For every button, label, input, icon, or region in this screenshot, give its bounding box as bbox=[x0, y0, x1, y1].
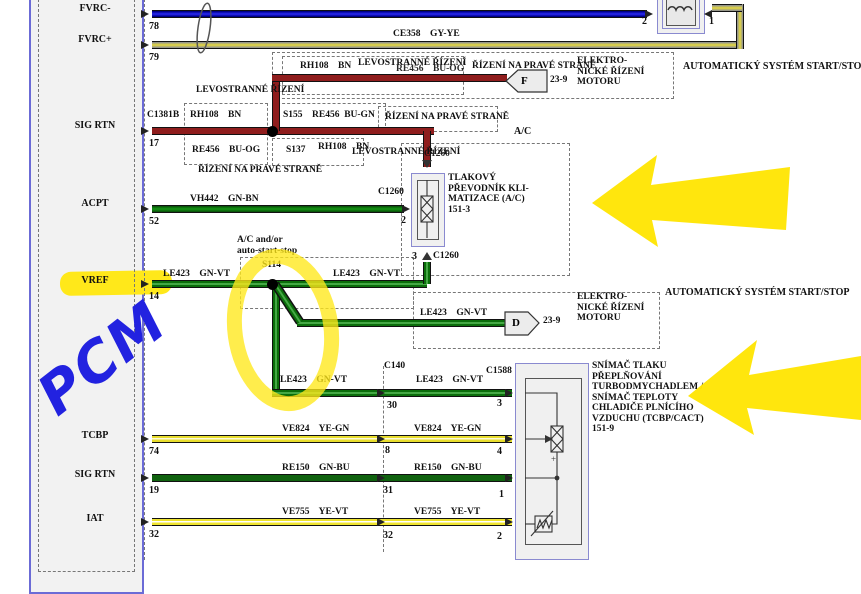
pcm-pin-label: TCBP bbox=[55, 431, 135, 442]
pcm-pin-number: 74 bbox=[149, 446, 159, 457]
c140-pin-31: 31 bbox=[383, 485, 393, 496]
tcbp-sensor-inner bbox=[525, 378, 582, 545]
c140-pin-32: 32 bbox=[383, 530, 393, 541]
label-splice-s155: S155 bbox=[283, 110, 303, 121]
wire-rh108-branch-to-f bbox=[272, 74, 507, 82]
wire-le423-vref-main bbox=[152, 280, 427, 288]
wire-ve755-ye-vt bbox=[152, 518, 512, 526]
pcm-pin-label: IAT bbox=[55, 514, 135, 525]
splice-s155-s137-dot bbox=[267, 126, 278, 137]
wire-le423-riser-c1260 bbox=[423, 262, 431, 284]
label-c1260-top: C1260 bbox=[424, 149, 450, 160]
label-ac-transducer: TLAKOVÝ PŘEVODNÍK KLI- MATIZACE (A/C) 15… bbox=[448, 173, 529, 215]
c1588-pin-4: 4 bbox=[497, 446, 502, 457]
pcm-connector-face-line bbox=[144, 0, 145, 560]
label-wire-rh108-top: RH108 BN bbox=[300, 61, 351, 72]
wire-ce358-gy-ye bbox=[152, 41, 744, 49]
pcm-pin-label: FVRC- bbox=[55, 4, 135, 15]
wiring-diagram-canvas: FVRC- FVRC+ SIG RTN ACPT VREF TCBP SIG R… bbox=[0, 0, 861, 594]
c1260-pin-2: 2 bbox=[401, 215, 406, 226]
c140-pin-8: 8 bbox=[385, 445, 390, 456]
pcm-pin-number: 78 bbox=[149, 21, 159, 32]
label-auto-start-stop-d: AUTOMATICKÝ SYSTÉM START/STOP bbox=[665, 288, 850, 299]
pcm-pin-number: 79 bbox=[149, 52, 159, 63]
label-wire-le423-c: LE423 GN-VT bbox=[420, 308, 487, 319]
label-rhd-mid: ŘÍZENÍ NA PRAVÉ STRANĚ bbox=[385, 112, 509, 123]
label-wire-re150-b: RE150 GN-BU bbox=[414, 463, 482, 474]
label-splice-s114: S114 bbox=[262, 260, 281, 271]
pcm-pin-number: 17 bbox=[149, 138, 159, 149]
connector-d-letter: D bbox=[512, 317, 520, 329]
wire-vh442-gn-bn bbox=[152, 205, 404, 213]
wire-re150-gn-bu bbox=[152, 474, 512, 482]
label-f-page: 23-9 bbox=[550, 75, 567, 86]
ac-transducer-inner bbox=[417, 180, 439, 240]
label-c1260-bottom: C1260 bbox=[433, 251, 459, 262]
label-c1588: C1588 bbox=[486, 366, 512, 377]
label-splice-s137: S137 bbox=[286, 145, 306, 156]
wire-rh108-main bbox=[152, 127, 434, 135]
label-wire-le423-a: LE423 GN-VT bbox=[163, 269, 230, 280]
pcm-pin-label: SIG RTN bbox=[55, 121, 135, 132]
label-c1381b: C1381B bbox=[147, 110, 179, 121]
inductor-pin-1: 1 bbox=[709, 16, 714, 27]
label-wire-re456og: RE456 BU-OG bbox=[192, 145, 260, 156]
wire-le423-to-c1588 bbox=[272, 389, 512, 397]
pcm-pin-label: FVRC+ bbox=[55, 35, 135, 46]
c1588-pin-1: 1 bbox=[499, 489, 504, 500]
label-c1260-left: C1260 bbox=[378, 187, 404, 198]
pcm-pin-number: 52 bbox=[149, 216, 159, 227]
pcm-pin-label: VREF bbox=[55, 276, 135, 287]
label-wire-re150-a: RE150 GN-BU bbox=[282, 463, 350, 474]
label-ecm-d: ELEKTRO- NICKÉ ŘÍZENÍ MOTORU bbox=[577, 292, 644, 324]
splice-s114-dot bbox=[267, 279, 278, 290]
pcm-pin-number: 19 bbox=[149, 485, 159, 496]
label-c140: C140 bbox=[384, 361, 405, 372]
pcm-pin-label: SIG RTN bbox=[55, 470, 135, 481]
c1588-pin-3: 3 bbox=[497, 398, 502, 409]
label-wire-le423-d: LE423 GN-VT bbox=[280, 375, 347, 386]
connector-f-letter: F bbox=[521, 75, 528, 87]
label-wire-ve824-b: VE824 YE-GN bbox=[414, 424, 481, 435]
label-wire-le423-e: LE423 GN-VT bbox=[416, 375, 483, 386]
label-rhd-below: ŘÍZENÍ NA PRAVÉ STRANĚ bbox=[198, 165, 322, 176]
c1588-arrow-icons bbox=[505, 389, 513, 526]
wire-le423-drop bbox=[272, 286, 280, 394]
c1260-pin-3: 3 bbox=[412, 251, 417, 262]
pcm-pin-number: 32 bbox=[149, 529, 159, 540]
label-wire-ve755-a: VE755 YE-VT bbox=[282, 507, 348, 518]
label-wire-re456gn: RE456 BU-GN bbox=[312, 110, 375, 121]
label-tcbp-sensor: SNÍMAČ TLAKU PŘEPLŇOVÁNÍ TURBODMYCHADLEM… bbox=[592, 361, 704, 435]
wire-ce356-bu-og bbox=[152, 10, 647, 18]
pcm-pin-label: ACPT bbox=[55, 199, 135, 210]
inductor-pin-2: 2 bbox=[642, 16, 647, 27]
highlighter-arrow-tcbp bbox=[688, 340, 861, 435]
wire-le423-branch-to-d bbox=[297, 319, 507, 327]
label-ecm-top: ELEKTRO- NICKÉ ŘÍZENÍ MOTORU bbox=[577, 56, 644, 88]
label-wire-rh108-left: RH108 BN bbox=[190, 110, 241, 121]
label-wire-ve755-b: VE755 YE-VT bbox=[414, 507, 480, 518]
label-wire-ce358: CE358 GY-YE bbox=[393, 29, 460, 40]
wire-ce358-top-run bbox=[712, 4, 742, 12]
label-ac-andor: A/C and/or auto-start-stop bbox=[237, 235, 297, 256]
label-wire-vh442: VH442 GN-BN bbox=[190, 194, 259, 205]
c1588-pin-2: 2 bbox=[497, 531, 502, 542]
label-wire-re456og-top: RE456 BU-OG bbox=[396, 64, 464, 75]
label-wire-le423-b: LE423 GN-VT bbox=[333, 269, 400, 280]
label-wire-ve824-a: VE824 YE-GN bbox=[282, 424, 349, 435]
c140-pin-30: 30 bbox=[387, 400, 397, 411]
wire-ve824-ye-gn bbox=[152, 435, 512, 443]
inductor-body bbox=[666, 0, 696, 26]
label-d-page: 23-9 bbox=[543, 316, 560, 327]
label-ac: A/C bbox=[514, 127, 531, 138]
label-wire-ce356: CE356 BU-OG bbox=[390, 0, 458, 4]
highlighter-arrow-ac bbox=[592, 155, 790, 247]
label-lhd-left: LEVOSTRANNÉ ŘÍZENÍ bbox=[196, 85, 304, 96]
label-auto-start-stop-top: AUTOMATICKÝ SYSTÉM START/STOP bbox=[683, 62, 861, 73]
